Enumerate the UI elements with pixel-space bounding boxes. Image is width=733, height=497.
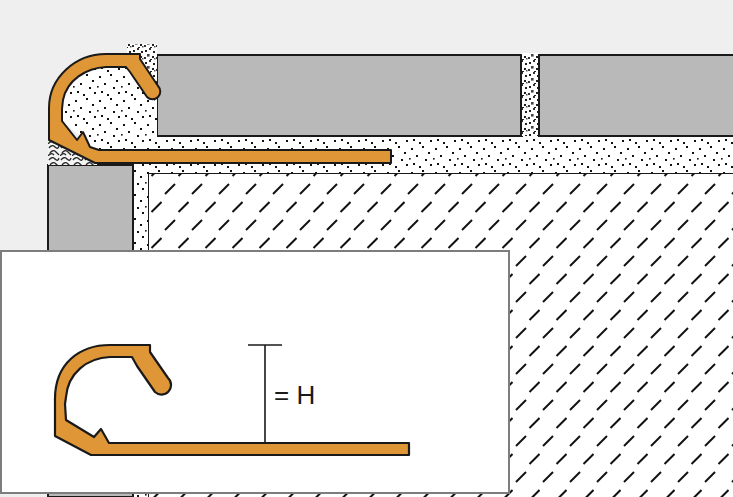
floor-tile-left xyxy=(157,55,521,136)
profile-installation-diagram: = H xyxy=(0,0,733,497)
profile-detail-drawing: = H xyxy=(2,252,508,492)
tile-grout-joint xyxy=(521,53,539,136)
edge-profile-detail xyxy=(55,345,409,455)
inset-panel: = H xyxy=(0,250,510,494)
floor-tile-right xyxy=(539,55,733,136)
height-dimension-label: = H xyxy=(274,380,315,410)
